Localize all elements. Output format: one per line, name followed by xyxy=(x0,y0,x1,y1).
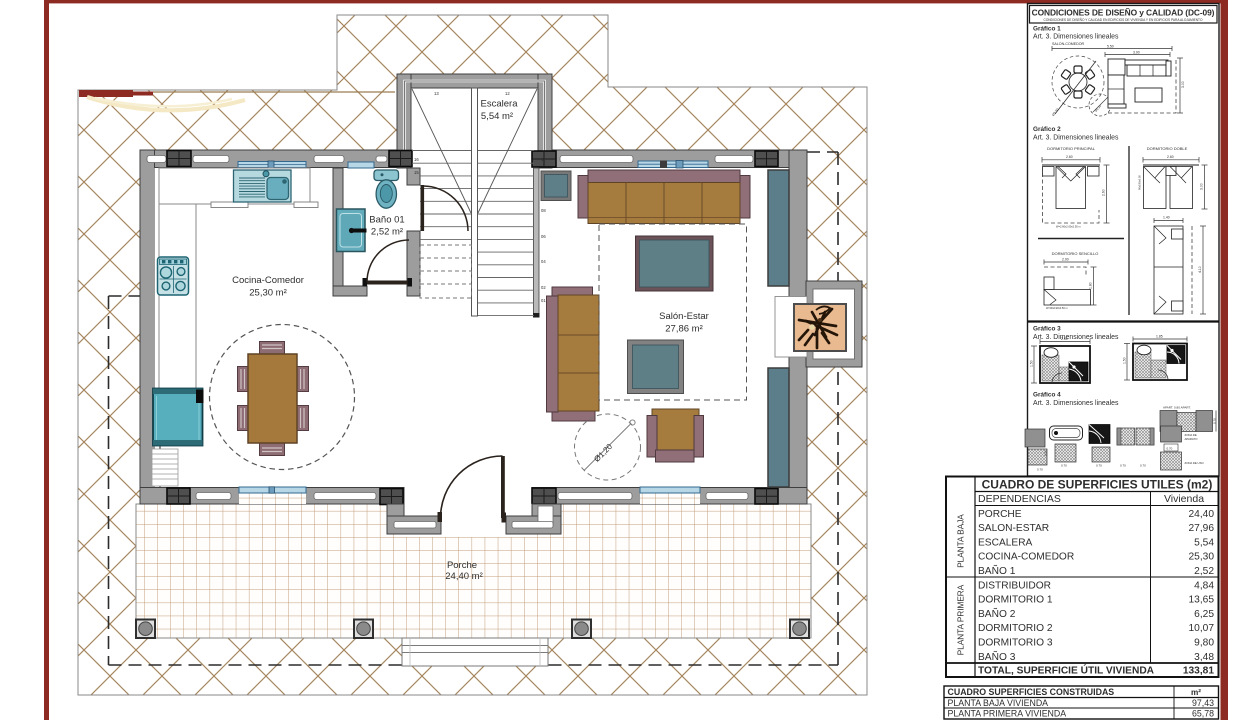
svg-text:W=2.60x2.60x2.50 m: W=2.60x2.60x2.50 m xyxy=(1056,225,1081,229)
svg-text:0.70: 0.70 xyxy=(1037,468,1043,472)
svg-text:PLANTA PRIMERA: PLANTA PRIMERA xyxy=(957,584,966,655)
svg-text:0.60: 0.60 xyxy=(1044,450,1048,456)
svg-text:5,54: 5,54 xyxy=(1194,537,1214,548)
svg-text:APARATO: APARATO xyxy=(1185,437,1199,441)
svg-text:DORMITORIO SENCILLO: DORMITORIO SENCILLO xyxy=(1052,251,1099,256)
svg-text:27,96: 27,96 xyxy=(1189,523,1215,534)
svg-text:Gráfico 2: Gráfico 2 xyxy=(1033,126,1061,133)
svg-text:01: 01 xyxy=(541,298,546,303)
svg-text:SALON-COMEDOR: SALON-COMEDOR xyxy=(1052,42,1085,46)
svg-text:BAÑO 1: BAÑO 1 xyxy=(978,564,1016,577)
svg-text:BAÑO 3: BAÑO 3 xyxy=(978,650,1016,663)
svg-text:0.70: 0.70 xyxy=(1061,464,1067,468)
svg-text:ZONA DE USO: ZONA DE USO xyxy=(1185,461,1205,465)
svg-text:Art. 3. Dimensiones lineales: Art. 3. Dimensiones lineales xyxy=(1033,400,1119,407)
svg-text:CONDICIONES DE DISEÑO Y CALIDA: CONDICIONES DE DISEÑO Y CALIDAD EN EDIFI… xyxy=(1044,17,1203,22)
svg-text:DEPENDENCIAS: DEPENDENCIAS xyxy=(978,493,1061,505)
svg-text:2.00: 2.00 xyxy=(1062,258,1069,262)
svg-text:TOTAL, SUPERFICIE ÚTIL VIVIEND: TOTAL, SUPERFICIE ÚTIL VIVIENDA xyxy=(978,664,1155,677)
svg-text:Gráfico 3: Gráfico 3 xyxy=(1033,326,1061,333)
svg-text:1.50: 1.50 xyxy=(1030,360,1034,367)
svg-text:Art. 3. Dimensiones lineales: Art. 3. Dimensiones lineales xyxy=(1033,34,1119,41)
svg-text:Gráfico 1: Gráfico 1 xyxy=(1033,26,1061,33)
svg-text:97,43: 97,43 xyxy=(1192,698,1214,708)
svg-text:PLANTA BAJA VIVIENDA: PLANTA BAJA VIVIENDA xyxy=(948,698,1049,708)
svg-text:6,25: 6,25 xyxy=(1194,609,1214,620)
svg-text:3.00: 3.00 xyxy=(1133,51,1140,55)
svg-text:0.70: 0.70 xyxy=(1213,418,1217,424)
svg-text:2.60: 2.60 xyxy=(1102,189,1106,196)
svg-text:2.60: 2.60 xyxy=(1066,155,1073,159)
svg-text:2,52 m²: 2,52 m² xyxy=(371,227,403,238)
svg-text:BAÑO 2: BAÑO 2 xyxy=(978,607,1016,620)
svg-text:DISTRIBUIDOR: DISTRIBUIDOR xyxy=(978,580,1051,591)
svg-text:133,81: 133,81 xyxy=(1183,666,1214,677)
svg-text:90x190x0.50: 90x190x0.50 xyxy=(1138,175,1142,190)
svg-text:Gráfico 4: Gráfico 4 xyxy=(1033,392,1061,399)
svg-text:DORMITORIO 3: DORMITORIO 3 xyxy=(978,638,1053,649)
svg-text:Baño 01: Baño 01 xyxy=(369,215,404,226)
svg-text:m²: m² xyxy=(1191,688,1201,697)
svg-text:5,54 m²: 5,54 m² xyxy=(481,111,513,122)
svg-text:1.85: 1.85 xyxy=(1156,335,1163,339)
svg-text:DORMITORIO 1: DORMITORIO 1 xyxy=(978,595,1053,606)
svg-text:1.80: 1.80 xyxy=(1089,282,1093,289)
svg-text:3,48: 3,48 xyxy=(1194,652,1214,663)
svg-text:CONDICIONES DE DISEÑO y CALIDA: CONDICIONES DE DISEÑO y CALIDAD (DC-09) xyxy=(1032,8,1215,18)
svg-text:16: 16 xyxy=(414,157,419,162)
svg-text:DORMITORIO DOBLE: DORMITORIO DOBLE xyxy=(1147,146,1188,151)
svg-text:Art. 3. Dimensiones lineales: Art. 3. Dimensiones lineales xyxy=(1033,334,1119,341)
svg-text:PORCHE: PORCHE xyxy=(978,509,1022,520)
svg-text:65,78: 65,78 xyxy=(1192,708,1214,718)
svg-text:3.00: 3.00 xyxy=(1181,81,1185,88)
svg-text:24,40: 24,40 xyxy=(1189,509,1215,520)
svg-text:4.10: 4.10 xyxy=(1198,266,1202,273)
svg-text:12: 12 xyxy=(505,91,510,96)
svg-text:PLANTA PRIMERA VIVIENDA: PLANTA PRIMERA VIVIENDA xyxy=(948,708,1067,718)
svg-text:W=90x190x0.50 m: W=90x190x0.50 m xyxy=(1046,306,1068,310)
svg-text:CUADRO DE SUPERFICIES UTILES (: CUADRO DE SUPERFICIES UTILES (m2) xyxy=(982,478,1213,492)
svg-text:DORMITORIO 2: DORMITORIO 2 xyxy=(978,623,1053,634)
svg-text:SALON-ESTAR: SALON-ESTAR xyxy=(978,523,1049,534)
svg-text:Cocina-Comedor: Cocina-Comedor xyxy=(232,275,304,286)
svg-text:04: 04 xyxy=(541,259,546,264)
svg-text:25,30 m²: 25,30 m² xyxy=(249,288,287,299)
svg-text:0.70: 0.70 xyxy=(1167,447,1173,451)
svg-text:15: 15 xyxy=(414,170,419,175)
svg-text:2,52: 2,52 xyxy=(1194,566,1214,577)
svg-text:3.00: 3.00 xyxy=(1200,183,1204,190)
svg-text:PLANTA BAJA: PLANTA BAJA xyxy=(957,514,966,568)
svg-text:Porche: Porche xyxy=(447,560,477,571)
svg-text:2.60: 2.60 xyxy=(1167,155,1174,159)
svg-text:27,86 m²: 27,86 m² xyxy=(665,324,703,335)
svg-text:06: 06 xyxy=(541,234,546,239)
svg-text:13,65: 13,65 xyxy=(1189,595,1215,606)
svg-text:24,40 m²: 24,40 m² xyxy=(445,571,483,582)
svg-text:COCINA-COMEDOR: COCINA-COMEDOR xyxy=(978,552,1074,563)
svg-text:9,80: 9,80 xyxy=(1194,638,1214,649)
svg-text:25,30: 25,30 xyxy=(1189,552,1215,563)
svg-text:APART. 0.80 APART.: APART. 0.80 APART. xyxy=(1163,406,1191,410)
svg-text:5.50: 5.50 xyxy=(1107,45,1114,49)
svg-text:Salón-Estar: Salón-Estar xyxy=(659,311,709,322)
svg-text:1.40: 1.40 xyxy=(1163,216,1170,220)
svg-text:DORMITORIO PRINCIPAL: DORMITORIO PRINCIPAL xyxy=(1047,146,1096,151)
svg-text:08: 08 xyxy=(541,208,546,213)
svg-text:0.70: 0.70 xyxy=(1140,464,1146,468)
svg-text:CUADRO SUPERFICIES CONSTRUIDAS: CUADRO SUPERFICIES CONSTRUIDAS xyxy=(948,687,1115,697)
svg-text:Escalera: Escalera xyxy=(481,99,519,110)
svg-text:02: 02 xyxy=(541,285,546,290)
svg-text:13: 13 xyxy=(434,91,439,96)
svg-text:11: 11 xyxy=(541,157,546,162)
svg-text:4,84: 4,84 xyxy=(1194,580,1214,591)
svg-text:Vivienda: Vivienda xyxy=(1164,493,1204,505)
svg-text:ESCALERA: ESCALERA xyxy=(978,537,1033,548)
svg-text:1.50: 1.50 xyxy=(1123,357,1127,364)
svg-text:Art. 3. Dimensiones lineales: Art. 3. Dimensiones lineales xyxy=(1033,135,1119,142)
svg-text:10,07: 10,07 xyxy=(1189,623,1215,634)
svg-text:0.70: 0.70 xyxy=(1096,464,1102,468)
svg-text:0.70: 0.70 xyxy=(1120,464,1126,468)
svg-text:2.00: 2.00 xyxy=(1061,337,1068,341)
